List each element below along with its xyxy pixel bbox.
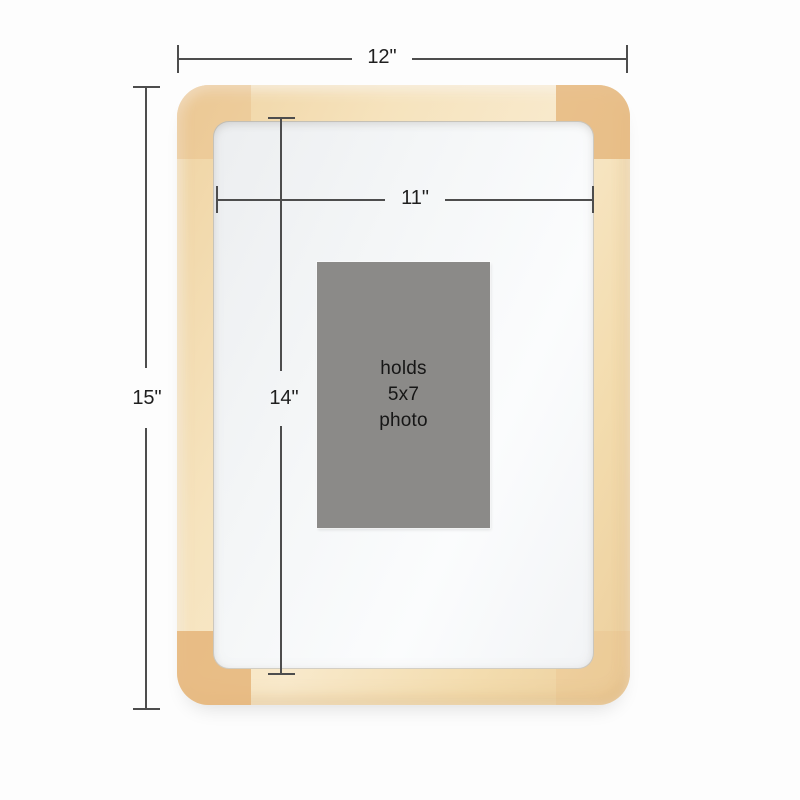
dim-line-segment (145, 88, 147, 368)
dim-label-inner-height: 14" (254, 387, 314, 410)
dim-tick-bottom (133, 708, 160, 710)
dim-tick-top (268, 117, 295, 119)
dim-line-segment (178, 58, 352, 60)
dim-line-segment (280, 426, 282, 673)
photo-placeholder-line2: 5x7 (388, 382, 419, 408)
photo-placeholder-line1: holds (380, 356, 426, 382)
dim-line-segment (280, 119, 282, 371)
dim-line-segment (445, 199, 593, 201)
dim-label-inner-width: 11" (385, 187, 445, 210)
dim-line-segment (145, 428, 147, 709)
photo-placeholder: holds 5x7 photo (317, 262, 490, 528)
product-image: holds 5x7 photo 12" 15" 11" 14" (0, 0, 800, 800)
dim-label-outer-width: 12" (352, 46, 412, 69)
picture-frame: holds 5x7 photo (177, 85, 630, 705)
dim-line-segment (218, 199, 385, 201)
dim-label-outer-height: 15" (117, 387, 177, 410)
dim-line-segment (412, 58, 627, 60)
photo-placeholder-line3: photo (379, 408, 428, 434)
dim-tick-bottom (268, 673, 295, 675)
dim-tick-top (133, 86, 160, 88)
